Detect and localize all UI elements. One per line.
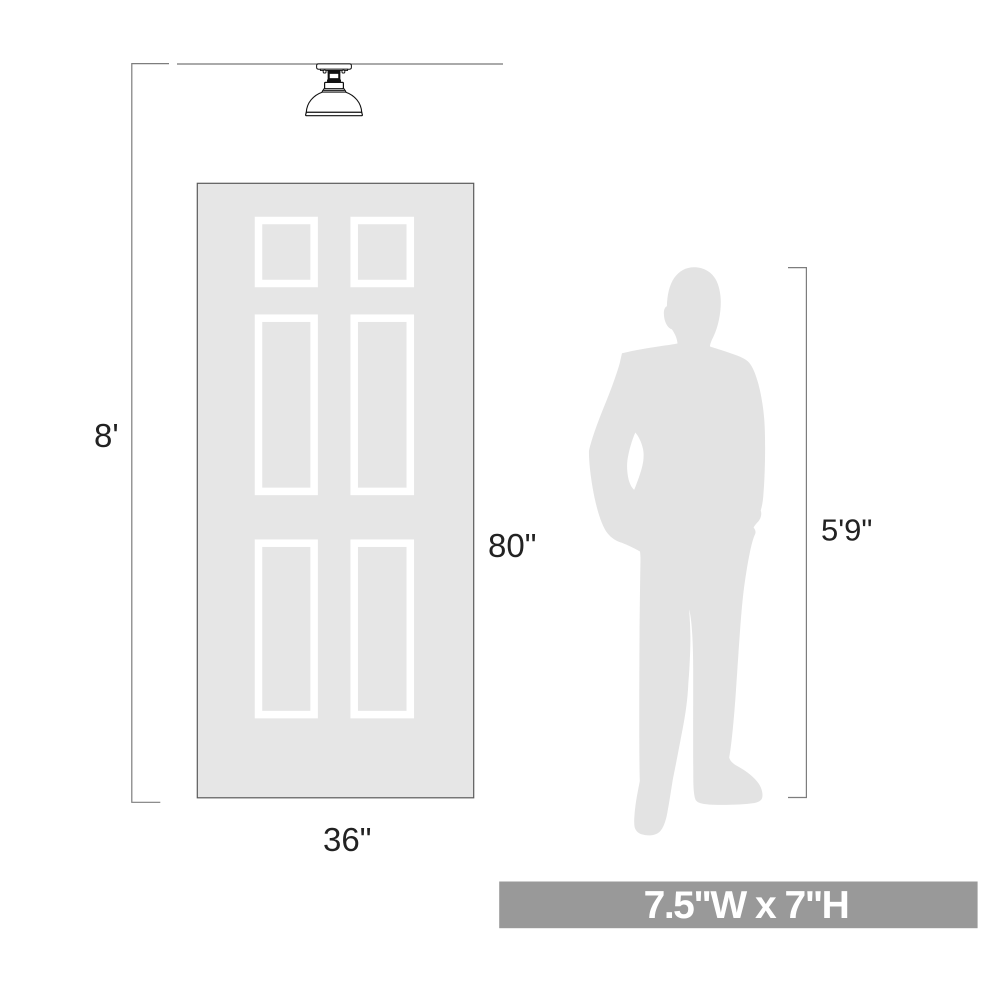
svg-text:80": 80" — [488, 527, 536, 564]
svg-text:36": 36" — [323, 821, 371, 858]
svg-text:5'9": 5'9" — [821, 513, 872, 548]
svg-text:7.5"W x 7"H: 7.5"W x 7"H — [644, 884, 849, 927]
svg-text:8': 8' — [94, 417, 119, 454]
